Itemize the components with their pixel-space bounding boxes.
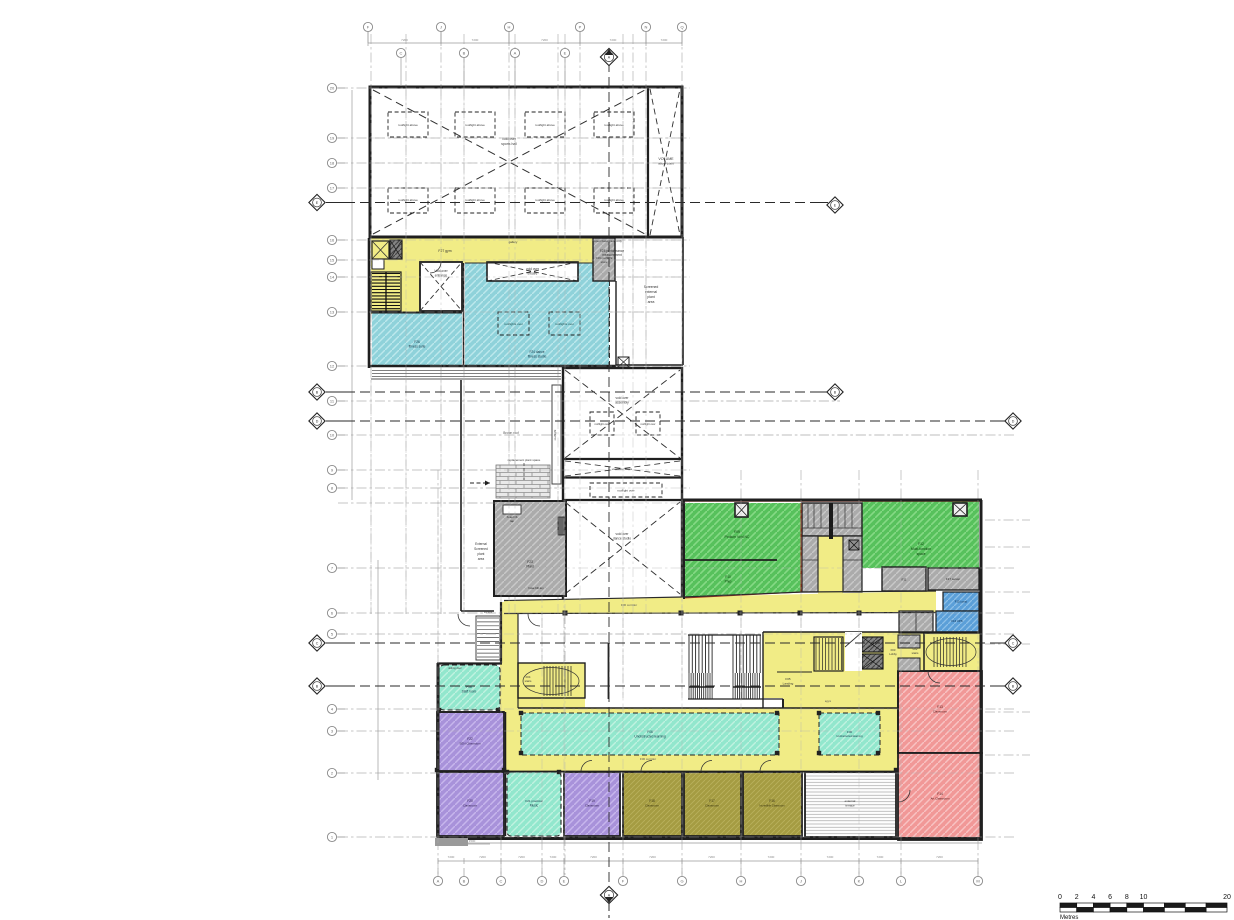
svg-text:void over: void over: [616, 532, 630, 536]
svg-text:void over: void over: [526, 267, 540, 271]
svg-text:C: C: [400, 51, 403, 56]
svg-text:K: K: [858, 879, 861, 884]
svg-text:F15 comp: F15 comp: [955, 600, 968, 604]
svg-text:7200: 7200: [472, 38, 479, 42]
svg-text:17: 17: [330, 186, 335, 191]
svg-text:F09: F09: [734, 530, 740, 534]
svg-text:10: 10: [1140, 894, 1148, 901]
svg-text:theatre: theatre: [528, 272, 538, 276]
svg-text:terrace: terrace: [845, 804, 855, 808]
svg-text:Unobstructed learning: Unobstructed learning: [634, 735, 665, 739]
svg-text:escape: escape: [484, 611, 493, 614]
svg-text:F06: F06: [647, 730, 653, 734]
svg-text:rooflight above: rooflight above: [604, 198, 624, 202]
svg-text:F06 corridor: F06 corridor: [640, 757, 656, 761]
svg-text:rooflights over: rooflights over: [504, 322, 523, 326]
svg-text:F20: F20: [467, 799, 473, 803]
svg-text:rooflight above: rooflight above: [398, 123, 418, 127]
svg-text:2: 2: [1075, 894, 1079, 901]
svg-text:C: C: [1012, 642, 1015, 646]
svg-text:F12: F12: [918, 542, 924, 546]
svg-text:F26: F26: [414, 340, 420, 344]
svg-text:Q: Q: [680, 25, 683, 30]
svg-text:20: 20: [1223, 894, 1231, 901]
svg-text:F11: F11: [902, 578, 907, 582]
svg-text:H: H: [740, 879, 743, 884]
svg-text:F05: F05: [785, 677, 791, 681]
svg-text:C: C: [316, 642, 319, 646]
svg-text:7200: 7200: [936, 855, 943, 859]
svg-text:fitness suite: fitness suite: [409, 345, 426, 349]
svg-text:F19: F19: [589, 799, 595, 803]
svg-text:fitness studio: fitness studio: [528, 355, 547, 359]
svg-text:4: 4: [1091, 894, 1095, 901]
svg-text:13: 13: [330, 310, 335, 315]
svg-text:Classroom: Classroom: [463, 804, 478, 808]
svg-text:E: E: [563, 879, 566, 884]
svg-text:F27 gym: F27 gym: [438, 249, 451, 253]
svg-text:SEN Classroom: SEN Classroom: [459, 742, 481, 746]
svg-text:Classroom: Classroom: [933, 710, 948, 714]
svg-text:20: 20: [330, 86, 335, 91]
svg-text:D: D: [1012, 420, 1015, 424]
svg-text:space: space: [916, 552, 925, 556]
svg-text:7200: 7200: [401, 38, 408, 42]
svg-text:15: 15: [330, 258, 335, 263]
svg-text:P: P: [579, 25, 582, 30]
svg-text:7200: 7200: [610, 38, 617, 42]
svg-text:rooflight above: rooflight above: [604, 123, 624, 127]
svg-text:Lobby: Lobby: [889, 652, 897, 656]
svg-text:8: 8: [1125, 894, 1129, 901]
svg-text:F17 server: F17 server: [946, 577, 960, 581]
svg-text:J: J: [800, 879, 802, 884]
svg-text:External: External: [475, 542, 487, 546]
svg-text:10: 10: [330, 433, 335, 438]
svg-text:B: B: [463, 51, 466, 56]
svg-text:F16 UPS: F16 UPS: [951, 619, 962, 623]
svg-text:area: area: [648, 300, 655, 304]
svg-text:7200: 7200: [550, 855, 557, 859]
svg-text:F17: F17: [709, 799, 715, 803]
svg-text:Classroom: Classroom: [645, 804, 660, 808]
svg-text:7200: 7200: [708, 855, 715, 859]
svg-text:6: 6: [1108, 894, 1112, 901]
svg-text:7200: 7200: [448, 855, 455, 859]
svg-text:stairs: stairs: [525, 679, 532, 683]
svg-text:12: 12: [330, 364, 335, 369]
svg-text:18: 18: [330, 161, 335, 166]
svg-text:F18: F18: [649, 799, 655, 803]
svg-text:dance studio: dance studio: [613, 537, 631, 541]
svg-text:7200: 7200: [518, 855, 525, 859]
svg-text:rooflight over: rooflight over: [617, 489, 634, 493]
svg-text:Screened: Screened: [474, 547, 488, 551]
svg-text:7200: 7200: [827, 855, 834, 859]
svg-text:agym: agym: [825, 700, 831, 703]
svg-text:Incredible Classroom: Incredible Classroom: [759, 804, 785, 808]
svg-text:7200: 7200: [649, 855, 656, 859]
svg-text:7200: 7200: [768, 855, 775, 859]
svg-text:area: area: [478, 557, 485, 561]
svg-text:rooflight above: rooflight above: [535, 198, 555, 202]
svg-text:Classroom: Classroom: [705, 804, 720, 808]
svg-text:rooflight over: rooflight over: [641, 422, 656, 426]
svg-text:Staff room: Staff room: [462, 690, 477, 694]
svg-text:plant: plant: [647, 295, 654, 299]
svg-text:F13: F13: [937, 705, 943, 709]
svg-text:J: J: [440, 25, 442, 30]
svg-text:D: D: [541, 879, 544, 884]
svg-text:sliding door: sliding door: [448, 666, 461, 670]
svg-text:void over: void over: [616, 396, 630, 400]
svg-text:G: G: [680, 879, 683, 884]
svg-text:Multi-function: Multi-function: [911, 547, 931, 551]
svg-text:19: 19: [330, 136, 335, 141]
svg-text:tap: tap: [510, 519, 514, 523]
svg-text:F24 dance: F24 dance: [529, 350, 544, 354]
svg-text:14: 14: [330, 275, 335, 280]
svg-text:F10: F10: [725, 575, 731, 579]
svg-text:Podium Void NC: Podium Void NC: [725, 535, 750, 539]
svg-text:16: 16: [330, 238, 335, 243]
svg-text:7200: 7200: [541, 38, 548, 42]
svg-text:rooflight above: rooflight above: [398, 198, 418, 202]
svg-text:Art Classroom: Art Classroom: [930, 797, 950, 801]
svg-text:rooflight above: rooflight above: [535, 123, 555, 127]
svg-text:stairs: stairs: [912, 651, 919, 655]
svg-text:F23: F23: [527, 560, 533, 564]
svg-text:F22: F22: [467, 737, 473, 741]
svg-text:Prep: Prep: [725, 580, 732, 584]
svg-text:F21 practical: F21 practical: [525, 799, 543, 803]
svg-text:store: store: [601, 260, 608, 264]
svg-text:7200: 7200: [877, 855, 884, 859]
svg-text:corridor: corridor: [717, 593, 727, 597]
svg-text:gallery: gallery: [509, 240, 518, 244]
svg-text:Classroom: Classroom: [585, 804, 600, 808]
svg-text:B: B: [463, 879, 466, 884]
svg-text:F06: F06: [847, 730, 853, 734]
svg-text:open balustrade only: open balustrade only: [594, 239, 622, 243]
svg-text:Metres: Metres: [1060, 915, 1078, 920]
svg-text:A: A: [514, 51, 517, 56]
svg-text:N: N: [645, 25, 648, 30]
svg-text:D: D: [316, 420, 319, 424]
svg-text:above plant: above plant: [658, 162, 674, 166]
svg-text:plant: plant: [478, 552, 485, 556]
svg-text:void over stairs: void over stairs: [612, 467, 633, 471]
svg-text:external: external: [845, 799, 856, 803]
svg-text:rooflight above: rooflight above: [465, 123, 485, 127]
svg-text:replacement plant space: replacement plant space: [508, 458, 541, 462]
svg-text:C: C: [500, 879, 503, 884]
svg-text:Music: Music: [530, 804, 539, 808]
svg-text:7200: 7200: [590, 855, 597, 859]
svg-text:F16: F16: [769, 799, 775, 803]
svg-text:E: E: [564, 51, 567, 56]
svg-text:Brown roof: Brown roof: [503, 431, 519, 435]
svg-text:0: 0: [1058, 894, 1062, 901]
svg-text:7200: 7200: [661, 38, 668, 42]
svg-text:A: A: [437, 879, 440, 884]
svg-text:H: H: [508, 25, 511, 30]
svg-text:7200: 7200: [479, 855, 486, 859]
svg-text:Landing: Landing: [783, 682, 794, 686]
svg-text:VOLUME: VOLUME: [658, 157, 674, 161]
svg-text:rooflight above: rooflight above: [465, 198, 485, 202]
svg-text:rooflight over: rooflight over: [595, 422, 610, 426]
svg-text:F14: F14: [937, 792, 943, 796]
svg-text:external: external: [645, 290, 657, 294]
svg-text:M: M: [976, 879, 979, 884]
